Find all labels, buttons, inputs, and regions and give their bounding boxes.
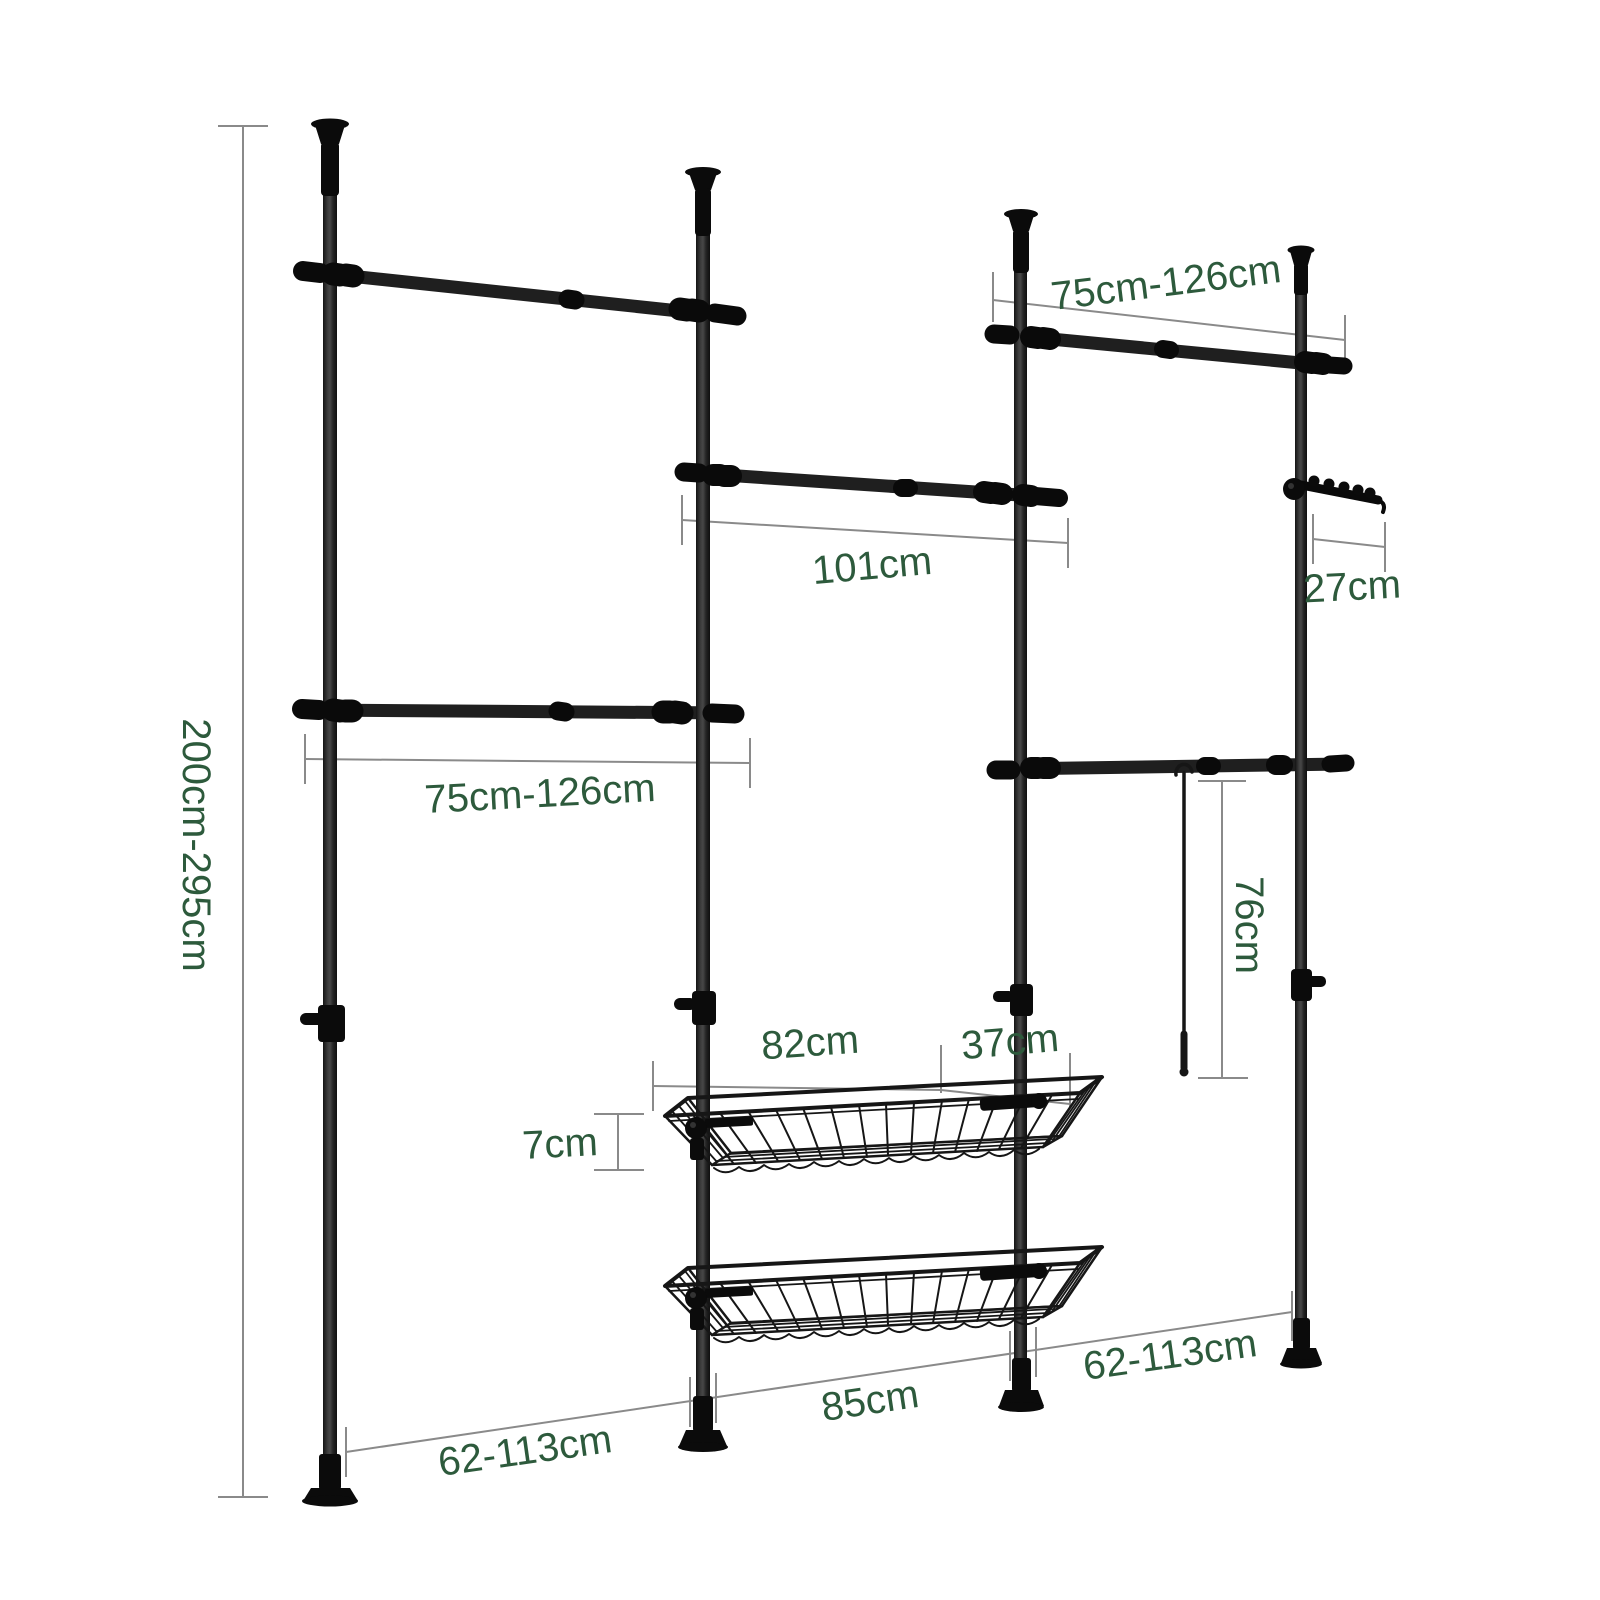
pole-3 [1014,238,1027,1362]
label-middle-rail-length: 101cm [810,539,933,593]
dimension-total-height [218,126,268,1497]
dimension-basket-height [594,1114,644,1170]
pole-clamp-2 [674,991,716,1025]
hanging-rod [1176,764,1192,1076]
dimension-labels: 200cm-295cm 75cm-126cm 75cm-126cm 101cm … [174,247,1402,1485]
label-floor-span-right: 62-113cm [1080,1321,1259,1389]
ceiling-mount-4 [1288,246,1315,296]
label-basket-rail-height: 7cm [521,1120,599,1168]
ceiling-mount-1 [311,119,349,197]
label-right-rail-length: 75cm-126cm [1049,247,1284,319]
label-floor-span-left: 62-113cm [435,1417,614,1485]
ceiling-mount-3 [1004,209,1038,273]
ceiling-mount-2 [685,167,721,236]
pole-1 [323,150,337,1458]
label-left-rail-length: 75cm-126cm [423,766,656,822]
clothes-rack-svg: 200cm-295cm 75cm-126cm 75cm-126cm 101cm … [0,0,1600,1600]
label-basket-length: 82cm [760,1018,861,1069]
pole-clamp-1 [300,1005,345,1042]
label-hanging-rod-length: 76cm [1227,876,1271,974]
product-dimension-diagram: 200cm-295cm 75cm-126cm 75cm-126cm 101cm … [0,0,1600,1600]
floor-foot-1 [302,1454,358,1507]
label-hook-rack-length: 27cm [1302,562,1402,611]
label-basket-depth: 37cm [959,1016,1060,1068]
floor-foot-2 [678,1396,728,1452]
hanging-rails [312,272,1342,769]
pole-clamp-4 [1291,969,1326,1001]
pole-2 [696,196,710,1398]
floor-foot-4 [1280,1318,1322,1369]
pole-4 [1295,290,1307,1322]
label-total-height: 200cm-295cm [174,718,218,971]
wire-basket-upper [665,1077,1102,1172]
floor-foot-3 [998,1358,1044,1412]
pole-clamp-3 [993,984,1033,1016]
